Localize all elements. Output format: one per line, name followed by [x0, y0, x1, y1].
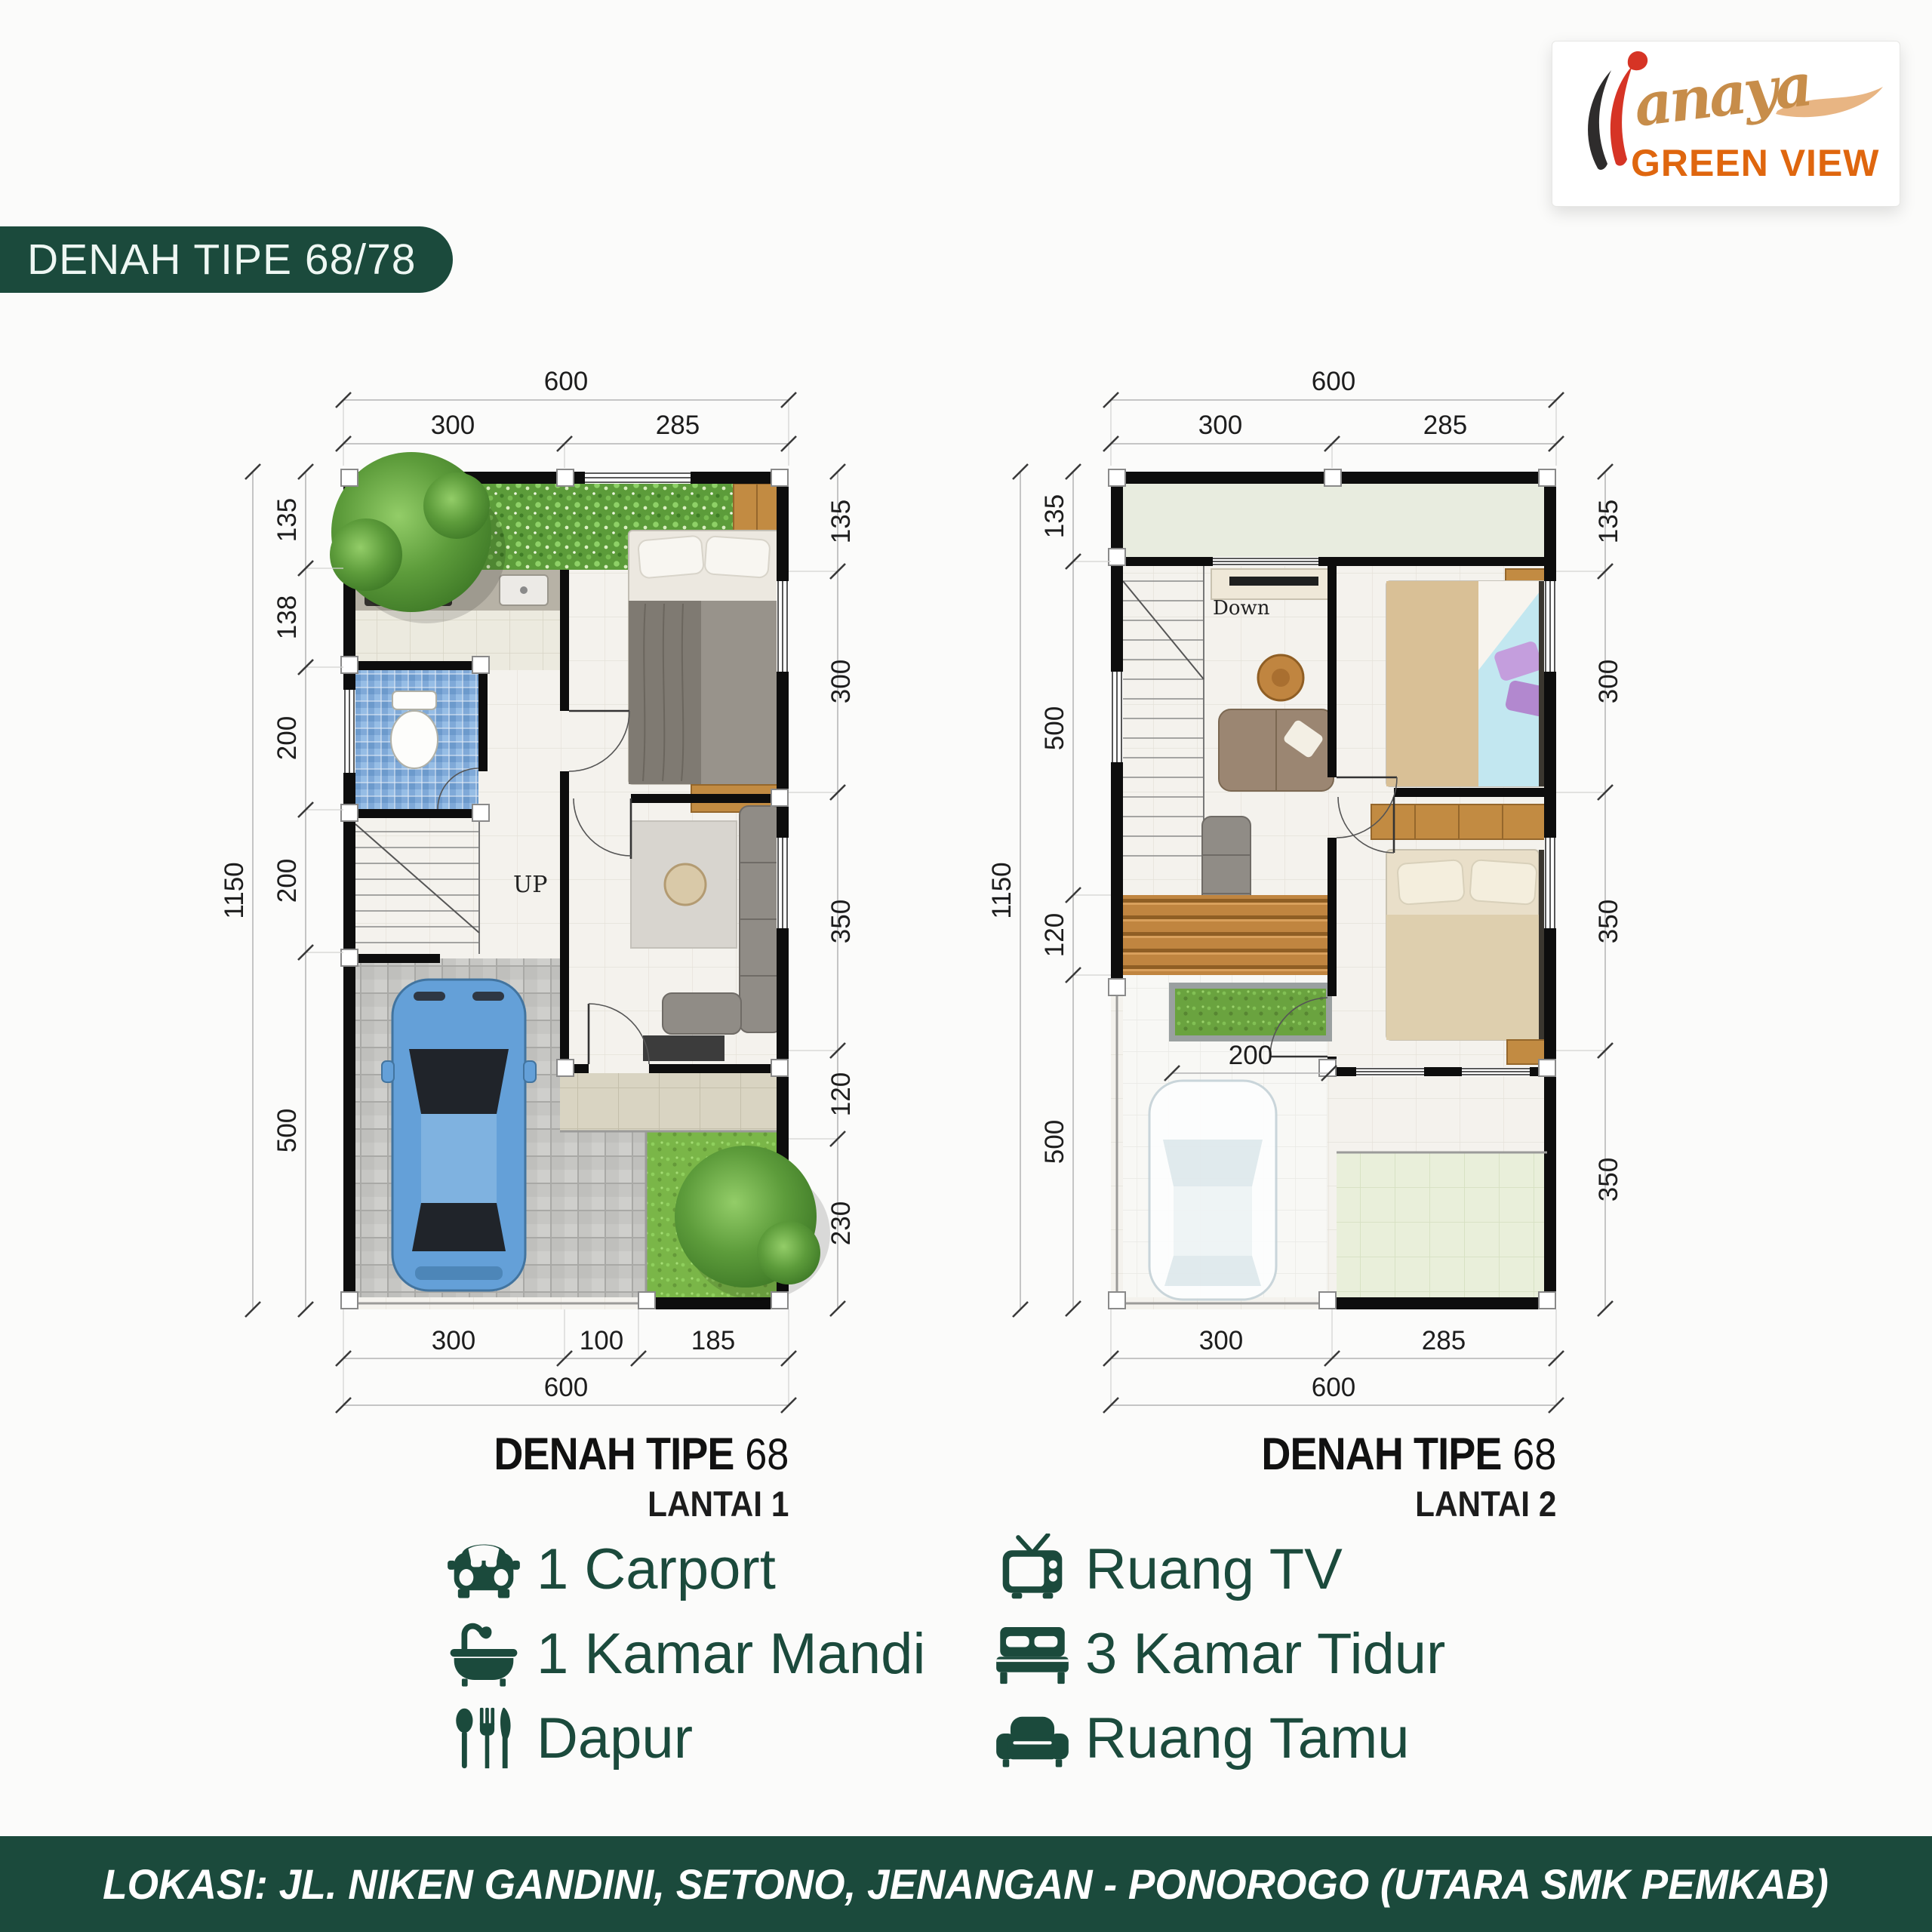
dim-label: 200	[272, 859, 302, 903]
dim-label: 300	[432, 1326, 475, 1355]
dim-label: 500	[1040, 1120, 1069, 1164]
flyer-page: anaya GREEN VIEW DENAH TIPE 68/78	[0, 0, 1932, 1932]
plan-type-badge: DENAH TIPE 68/78	[0, 226, 453, 293]
tv-icon	[990, 1532, 1075, 1606]
dim-label: 600	[1312, 367, 1355, 396]
dim-label: 350	[1594, 1158, 1623, 1201]
plan2-ghost-car	[1149, 1081, 1276, 1300]
plan2-caption-title: DENAH TIPE	[1261, 1429, 1501, 1479]
plan1-porch	[560, 1073, 780, 1131]
bathtub-icon	[441, 1617, 526, 1690]
dim-label: 500	[272, 1109, 302, 1152]
dim-label: 600	[1312, 1373, 1355, 1402]
dim-label: 285	[656, 411, 700, 440]
cutlery-icon	[441, 1701, 526, 1775]
dim-label: 600	[544, 1373, 588, 1402]
dim-label: 300	[1594, 660, 1623, 703]
brand-main-text: GREEN VIEW	[1631, 142, 1879, 184]
logo-swoosh-black	[1588, 70, 1611, 170]
plan2-wood-deck	[1123, 895, 1327, 975]
plan1-caption-title: DENAH TIPE	[494, 1429, 734, 1479]
plan1-driveway	[560, 1131, 646, 1297]
dim-label: 200	[272, 716, 302, 760]
features-left-column: 1 Carport 1 Kamar Mandi	[441, 1531, 925, 1777]
dim-label: 120	[1040, 913, 1069, 957]
logo-flame-dot	[1628, 51, 1647, 70]
dim-label: 350	[1594, 900, 1623, 943]
dim-label: 300	[431, 411, 475, 440]
plan1-stairs-label: UP	[513, 872, 547, 898]
location-footer-bar: LOKASI: JL. NIKEN GANDINI, SETONO, JENAN…	[0, 1836, 1932, 1932]
dim-label: 185	[691, 1326, 735, 1355]
dim-label: 600	[544, 367, 588, 396]
feature-ruang-tamu: Ruang Tamu	[990, 1700, 1445, 1777]
dim-label: 285	[1423, 411, 1467, 440]
plan2-roof-tile-area	[1337, 1152, 1547, 1297]
dim-label: 1150	[987, 862, 1017, 918]
features-right-column: Ruang TV 3 Kamar Tidur	[990, 1531, 1445, 1777]
feature-label: Ruang Tamu	[1085, 1706, 1410, 1771]
dim-label: 500	[1040, 706, 1069, 750]
feature-label: 1 Kamar Mandi	[537, 1621, 925, 1687]
brand-script-text: anaya	[1630, 51, 1814, 140]
plan1-caption-subtitle: LANTAI 1	[494, 1483, 789, 1524]
plan1-car	[382, 980, 536, 1291]
feature-dapur: Dapur	[441, 1700, 925, 1777]
dim-label: 230	[826, 1201, 856, 1245]
feature-carport: 1 Carport	[441, 1531, 925, 1607]
plan2-balcony-strip	[1123, 484, 1544, 557]
floor-plan-lantai-2: 200 600 300 285 1150 135 500 120 500	[979, 355, 1658, 1487]
dim-label: 200	[1229, 1041, 1272, 1070]
plan1-bedroom-furniture	[629, 484, 780, 812]
feature-label: Dapur	[537, 1706, 693, 1771]
dim-label: 135	[1040, 494, 1069, 538]
brand-logo-graphic: anaya GREEN VIEW	[1552, 42, 1900, 206]
dim-label: 100	[580, 1326, 623, 1355]
plan1-caption: DENAH TIPE 68 LANTAI 1	[461, 1428, 789, 1524]
feature-label: Ruang TV	[1085, 1537, 1343, 1602]
plan2-bedroom1-furniture	[1386, 569, 1554, 786]
plan1-caption-number: 68	[745, 1430, 789, 1479]
feature-ruang-tv: Ruang TV	[990, 1531, 1445, 1607]
dim-label: 138	[272, 595, 302, 639]
feature-label: 1 Carport	[537, 1537, 776, 1602]
brand-logo: anaya GREEN VIEW	[1552, 41, 1900, 207]
plan2-caption-number: 68	[1512, 1430, 1556, 1479]
plan-type-badge-label: DENAH TIPE 68/78	[27, 235, 417, 285]
dim-label: 120	[826, 1072, 856, 1116]
plan1-toilet	[391, 691, 438, 768]
floor-plan-lantai-1: 600 300 285 1150 135 138 200 200 500 135…	[211, 355, 891, 1487]
dim-label: 300	[826, 660, 856, 703]
plan2-caption: DENAH TIPE 68 LANTAI 2	[1229, 1428, 1556, 1524]
plan2-stairs-label: Down	[1213, 597, 1270, 620]
dim-label: 1150	[220, 862, 249, 918]
dim-label: 300	[1199, 1326, 1243, 1355]
dim-label: 350	[826, 900, 856, 943]
bed-icon	[990, 1617, 1075, 1690]
sofa-icon	[990, 1701, 1075, 1775]
dim-label: 300	[1198, 411, 1242, 440]
dim-label: 135	[272, 498, 302, 542]
location-text: LOKASI: JL. NIKEN GANDINI, SETONO, JENAN…	[103, 1860, 1829, 1909]
dim-label: 285	[1422, 1326, 1466, 1355]
plan2-caption-subtitle: LANTAI 2	[1261, 1483, 1556, 1524]
feature-kamar-mandi: 1 Kamar Mandi	[441, 1615, 925, 1692]
plan2-planter-box	[1172, 986, 1329, 1038]
dim-label: 135	[826, 500, 856, 543]
car-icon	[441, 1532, 526, 1606]
dim-label: 135	[1594, 500, 1623, 543]
logo-swoosh-red	[1611, 66, 1632, 166]
feature-kamar-tidur: 3 Kamar Tidur	[990, 1615, 1445, 1692]
feature-label: 3 Kamar Tidur	[1085, 1621, 1445, 1687]
